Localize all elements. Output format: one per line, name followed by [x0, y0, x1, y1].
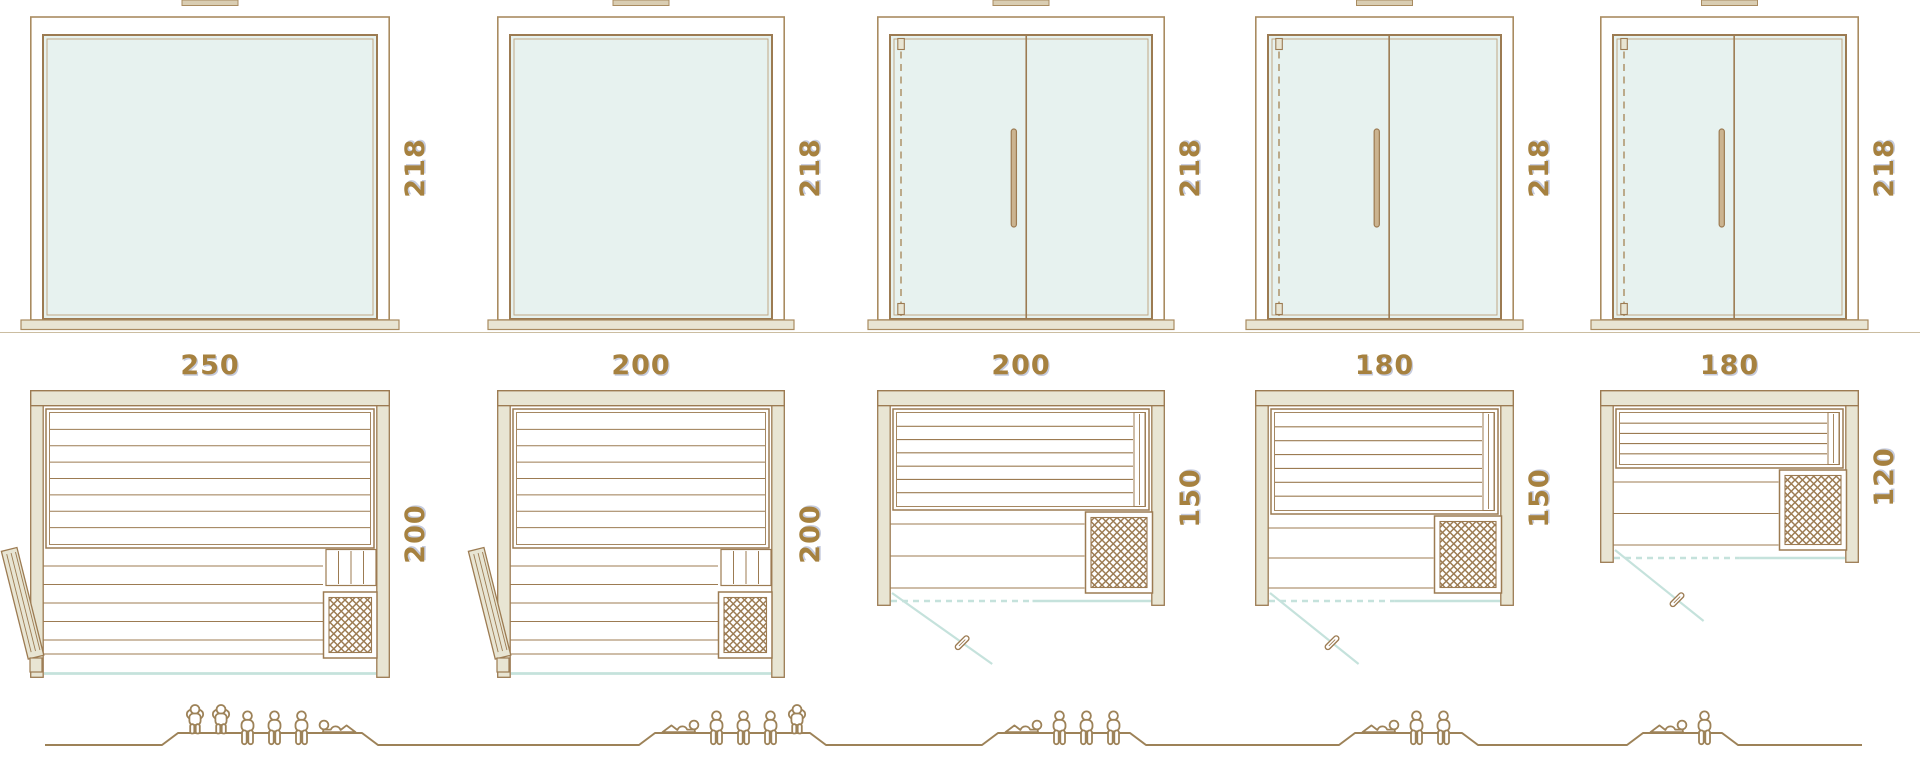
upper-bench [1271, 409, 1498, 514]
glass-panel [890, 35, 1152, 319]
glass-panel [1613, 35, 1846, 319]
sauna-250x200: 250218200 [30, 0, 390, 770]
door-swing [892, 593, 992, 664]
height-dimension-label: 218 [401, 136, 431, 200]
person-standing-icon [789, 705, 805, 734]
person-lying-icon [320, 721, 356, 733]
person-sitting-icon [1438, 711, 1450, 744]
right-wall [1152, 406, 1165, 606]
heater [1086, 512, 1153, 593]
door-handle [1011, 129, 1016, 227]
capacity-row [0, 688, 1920, 770]
roof-cap [613, 0, 669, 6]
hinge-bottom-icon [1276, 304, 1283, 315]
front-elevation [1588, 0, 1871, 346]
back-wall [498, 391, 785, 406]
door-pull-handle [954, 635, 970, 651]
person-lying-icon [1006, 721, 1042, 733]
width-dimension-label: 250 [30, 351, 390, 381]
person-sitting-icon [269, 711, 281, 744]
glass-panel [1268, 35, 1501, 319]
upper-bench [513, 409, 769, 548]
sill [868, 320, 1174, 330]
roof-cap [993, 0, 1049, 6]
back-wall [31, 391, 390, 406]
door-pivot [497, 658, 509, 672]
height-dimension-label: 218 [1870, 136, 1900, 200]
heater [1780, 470, 1847, 550]
width-dimension-label: 180 [1600, 351, 1859, 381]
capacity-group-sauna-180x150 [1363, 711, 1450, 744]
hinge-bottom-icon [898, 304, 905, 315]
height-dimension-label: 218 [1176, 136, 1206, 200]
person-sitting-icon [296, 711, 308, 744]
bench-step [721, 550, 771, 586]
top-plan [849, 390, 1193, 688]
sill [488, 320, 794, 330]
upper-bench [1616, 409, 1843, 468]
person-sitting-icon [1054, 711, 1066, 744]
person-sitting-icon [1411, 711, 1423, 744]
front-elevation [18, 0, 402, 346]
sill [1591, 320, 1868, 330]
door-pivot [30, 658, 42, 672]
sauna-size-diagram: 2502182002002182002002181501802181501802… [0, 0, 1920, 770]
upper-bench [893, 409, 1149, 510]
person-sitting-icon [242, 711, 254, 744]
hinge-bottom-icon [1621, 304, 1628, 315]
front-elevation [865, 0, 1177, 346]
right-wall [1846, 406, 1859, 563]
roof-cap [1702, 0, 1758, 6]
door-swing [1270, 593, 1359, 664]
lower-bench [1614, 482, 1779, 545]
height-dimension-label: 218 [796, 136, 826, 200]
sauna-180x120: 180218120 [1600, 0, 1859, 770]
sill [1246, 320, 1523, 330]
right-wall [377, 406, 390, 678]
hinge-top-icon [1276, 39, 1283, 50]
roof-cap [182, 0, 238, 6]
capacity-group-sauna-250x200 [187, 705, 356, 744]
heater [719, 592, 773, 658]
hinge-top-icon [898, 39, 905, 50]
back-wall [878, 391, 1165, 406]
person-sitting-icon [1081, 711, 1093, 744]
capacity-group-sauna-200x150 [1006, 711, 1120, 744]
upper-bench [46, 409, 374, 548]
left-wall [1601, 406, 1614, 563]
width-dimension-label: 200 [497, 351, 785, 381]
person-sitting-icon [1108, 711, 1120, 744]
glass-panel [43, 35, 377, 319]
front-elevation [485, 0, 797, 346]
width-dimension-label: 180 [1255, 351, 1514, 381]
left-wall [1256, 406, 1269, 606]
hinge-top-icon [1621, 39, 1628, 50]
person-sitting-icon [1699, 711, 1711, 744]
door-swing [1615, 550, 1704, 621]
door-handle [1374, 129, 1379, 227]
capacity-group-sauna-200x200 [663, 705, 806, 744]
lower-bench [44, 566, 324, 654]
sauna-200x150: 200218150 [877, 0, 1165, 770]
right-wall [1501, 406, 1514, 606]
height-dimension-label: 218 [1525, 136, 1555, 200]
roof-cap [1357, 0, 1413, 6]
person-lying-icon [1651, 721, 1687, 733]
person-standing-icon [213, 705, 229, 734]
heater [324, 592, 378, 658]
person-sitting-icon [738, 711, 750, 744]
person-lying-icon [1363, 721, 1399, 733]
person-sitting-icon [765, 711, 777, 744]
back-wall [1601, 391, 1859, 406]
lower-bench [511, 566, 719, 654]
lower-bench [1269, 528, 1434, 588]
heater [1435, 516, 1502, 593]
back-wall [1256, 391, 1514, 406]
sill [21, 320, 399, 330]
top-plan [1227, 390, 1542, 688]
bench-step [326, 550, 376, 586]
person-sitting-icon [711, 711, 723, 744]
width-dimension-label: 200 [877, 351, 1165, 381]
capacity-group-sauna-180x120 [1651, 711, 1711, 744]
door-handle [1719, 129, 1724, 227]
right-wall [772, 406, 785, 678]
left-wall [878, 406, 891, 606]
sauna-200x200: 200218200 [497, 0, 785, 770]
capacity-ground-line [45, 733, 1862, 745]
glass-panel [510, 35, 772, 319]
sauna-180x150: 180218150 [1255, 0, 1514, 770]
lower-bench [891, 524, 1085, 588]
top-plan [1572, 390, 1887, 645]
person-standing-icon [187, 705, 203, 734]
front-elevation [1243, 0, 1526, 346]
person-lying-icon [663, 721, 699, 733]
